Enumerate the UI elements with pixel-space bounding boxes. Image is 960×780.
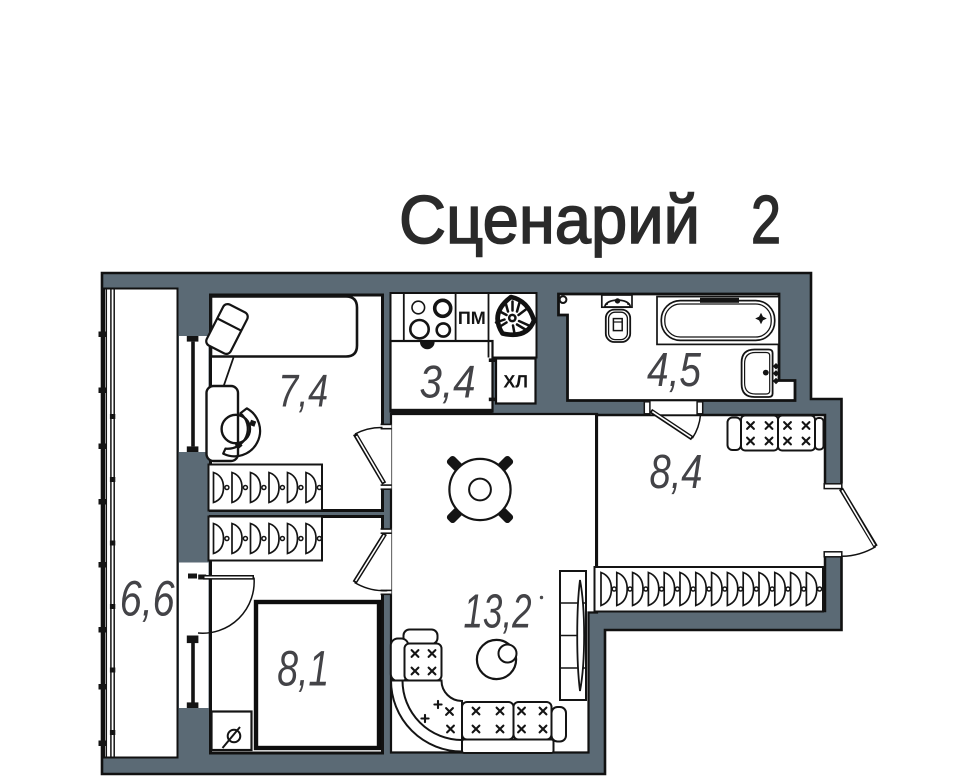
- svg-text:Сценарий: Сценарий: [399, 182, 700, 258]
- svg-text:8,4: 8,4: [650, 446, 703, 499]
- svg-text:6,6: 6,6: [120, 571, 175, 627]
- svg-text:8,1: 8,1: [277, 641, 329, 697]
- svg-text:ХЛ: ХЛ: [503, 372, 528, 392]
- svg-text:7,4: 7,4: [278, 365, 328, 417]
- svg-text:ПМ: ПМ: [458, 308, 486, 328]
- svg-text:4,5: 4,5: [647, 344, 701, 397]
- svg-text:2: 2: [751, 182, 781, 258]
- svg-text:13,2: 13,2: [464, 586, 532, 639]
- svg-text:3,4: 3,4: [420, 356, 476, 408]
